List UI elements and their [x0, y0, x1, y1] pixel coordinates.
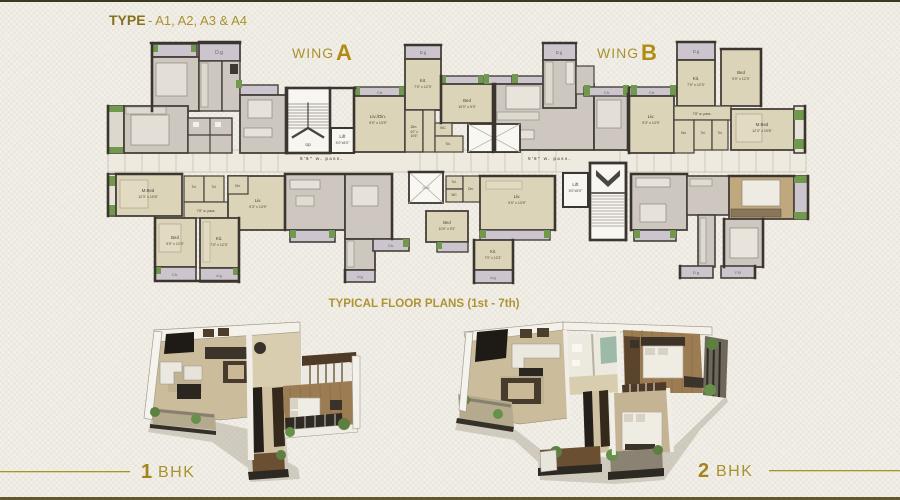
- svg-text:Bed: Bed: [463, 98, 471, 103]
- svg-text:d.g: d.g: [490, 275, 496, 280]
- svg-text:A: A: [336, 40, 352, 65]
- svg-text:Kit.: Kit.: [216, 236, 222, 241]
- svg-text:5'6" w. pass.: 5'6" w. pass.: [300, 156, 343, 161]
- svg-text:10'6": 10'6": [410, 134, 417, 138]
- svg-text:Kit.: Kit.: [420, 78, 426, 83]
- svg-text:2: 2: [698, 460, 709, 482]
- svg-text:Tol.: Tol.: [445, 142, 450, 146]
- svg-text:Din.: Din.: [235, 184, 241, 188]
- svg-text:M.Bed: M.Bed: [756, 122, 769, 127]
- svg-text:1: 1: [141, 461, 152, 483]
- svg-text:9'0" x 12'3": 9'0" x 12'3": [166, 242, 184, 246]
- svg-text:WC: WC: [451, 193, 457, 197]
- svg-text:WING: WING: [597, 45, 639, 61]
- svg-text:Din.: Din.: [468, 187, 474, 191]
- svg-text:10'0" x 9'3": 10'0" x 9'3": [439, 227, 457, 231]
- svg-text:D.g: D.g: [693, 270, 699, 275]
- svg-text:BHK: BHK: [716, 463, 753, 480]
- svg-text:Bed: Bed: [443, 220, 451, 225]
- svg-text:9'0" x 13'9": 9'0" x 13'9": [369, 121, 387, 125]
- svg-text:WING: WING: [292, 45, 334, 61]
- svg-text:Ch.: Ch.: [388, 243, 394, 248]
- svg-text:5'0"x5'0": 5'0"x5'0": [569, 189, 583, 193]
- svg-text:9'0" x 13'9": 9'0" x 13'9": [508, 201, 526, 205]
- svg-text:Liv.: Liv.: [514, 194, 521, 199]
- svg-text:TYPICAL FLOOR PLANS (1st - 7th: TYPICAL FLOOR PLANS (1st - 7th): [328, 297, 519, 310]
- svg-text:Ch.: Ch.: [377, 90, 383, 95]
- svg-text:Tol.: Tol.: [701, 131, 706, 135]
- svg-text:7'0" x 12'3": 7'0" x 12'3": [485, 256, 503, 260]
- svg-text:D.g: D.g: [693, 49, 700, 54]
- svg-text:12'3" x 10'6": 12'3" x 10'6": [752, 129, 772, 133]
- svg-text:7'0" x 12'3": 7'0" x 12'3": [210, 243, 228, 247]
- svg-text:Ch.: Ch.: [172, 272, 178, 277]
- svg-text:7'8" w. pass.: 7'8" w. pass.: [693, 112, 712, 116]
- svg-text:B: B: [641, 40, 657, 65]
- svg-text:Bed: Bed: [171, 235, 179, 240]
- svg-text:Din.: Din.: [411, 125, 418, 129]
- svg-text:F.B: F.B: [735, 270, 741, 275]
- svg-text:Din.: Din.: [681, 131, 687, 135]
- svg-text:Bed: Bed: [737, 70, 745, 75]
- svg-text:Liv./Din.: Liv./Din.: [370, 114, 386, 119]
- svg-text:d.g: d.g: [216, 273, 222, 278]
- svg-text:7'0" x 12'3": 7'0" x 12'3": [414, 85, 432, 89]
- svg-text:9'3" x 13'9": 9'3" x 13'9": [249, 205, 267, 209]
- svg-text:BHK: BHK: [158, 464, 195, 481]
- svg-text:Liv.: Liv.: [648, 114, 655, 119]
- svg-text:10'0" x 9'3": 10'0" x 9'3": [458, 105, 476, 109]
- svg-text:D.g: D.g: [556, 50, 563, 55]
- svg-text:Tol.: Tol.: [452, 180, 457, 184]
- svg-text:9'3" x 13'9": 9'3" x 13'9": [642, 121, 660, 125]
- svg-text:d.g: d.g: [357, 274, 363, 279]
- svg-text:Tol.: Tol.: [212, 185, 217, 189]
- svg-text:12'3" x 10'6": 12'3" x 10'6": [138, 195, 158, 199]
- svg-text:7'8" w. pass.: 7'8" w. pass.: [197, 209, 216, 213]
- svg-text:7'0" x 12'3": 7'0" x 12'3": [687, 83, 705, 87]
- svg-text:5'6" w. pass.: 5'6" w. pass.: [528, 156, 571, 161]
- svg-text:M.Bed: M.Bed: [142, 188, 155, 193]
- svg-text:Ch.: Ch.: [649, 90, 655, 95]
- svg-text:Ch.: Ch.: [604, 90, 610, 95]
- svg-text:D.g: D.g: [215, 50, 223, 56]
- svg-text:Kit.: Kit.: [490, 249, 496, 254]
- svg-text:Lift: Lift: [572, 182, 579, 187]
- svg-text:Lift: Lift: [339, 134, 346, 139]
- svg-text:TYPE: TYPE: [109, 12, 146, 28]
- svg-text:- A1, A2, A3 & A4: - A1, A2, A3 & A4: [148, 13, 247, 28]
- svg-text:Duct: Duct: [423, 186, 430, 190]
- svg-text:D.g: D.g: [420, 50, 427, 55]
- svg-text:Kit.: Kit.: [693, 76, 699, 81]
- svg-text:9'0" x 12'3": 9'0" x 12'3": [732, 77, 750, 81]
- svg-text:WC: WC: [440, 126, 446, 130]
- svg-text:Liv.: Liv.: [255, 198, 262, 203]
- svg-text:Up: Up: [305, 142, 311, 147]
- svg-text:Tol.: Tol.: [192, 185, 197, 189]
- svg-text:5'0"x5'0": 5'0"x5'0": [336, 141, 350, 145]
- svg-text:Tol.: Tol.: [718, 131, 723, 135]
